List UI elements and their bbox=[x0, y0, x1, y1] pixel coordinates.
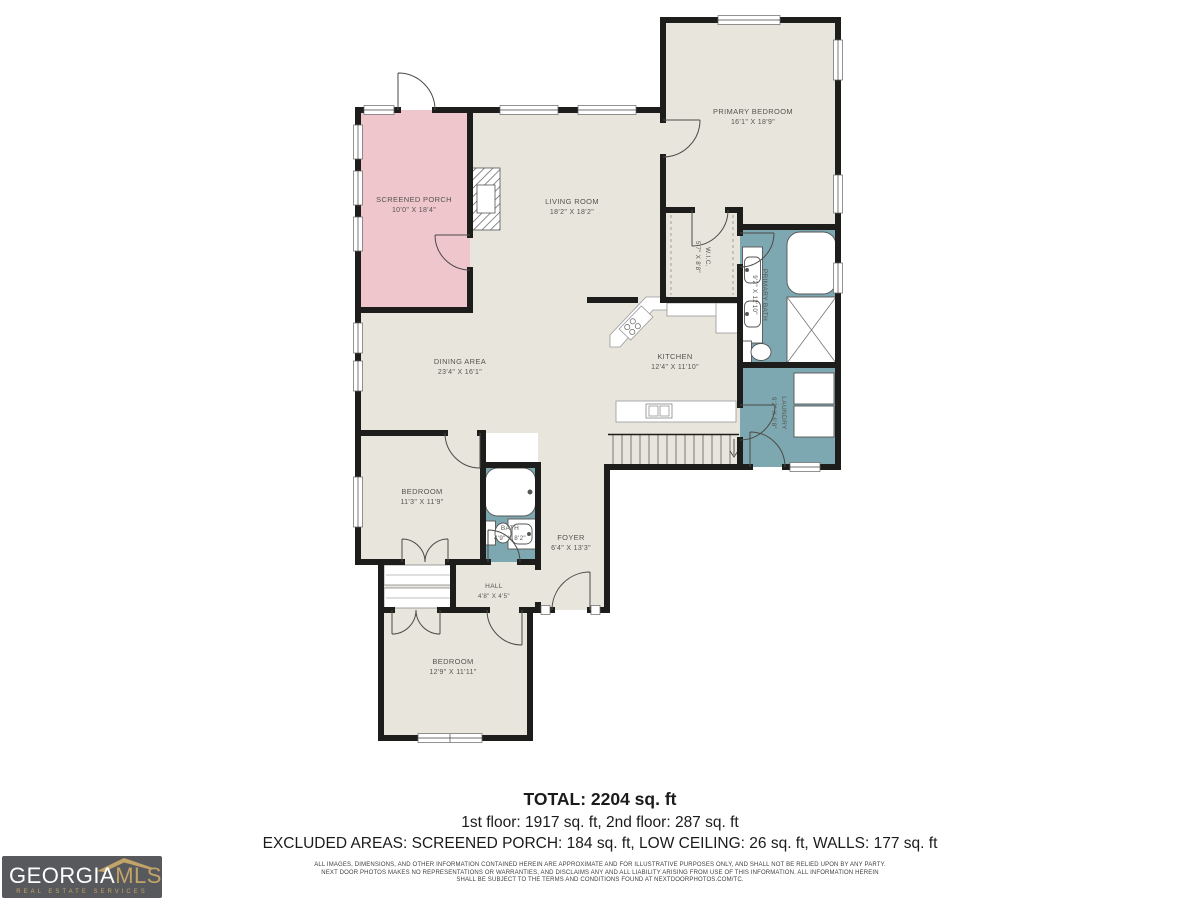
room-label-kitchen: KITCHEN12'4" X 11'10" bbox=[651, 351, 699, 373]
logo-wordmark: GEORGIAMLS bbox=[9, 865, 162, 887]
toilet-bowl bbox=[751, 344, 771, 361]
disclaimer-line-3: SHALL BE SUBJECT TO THE TERMS AND CONDIT… bbox=[0, 877, 1200, 885]
logo-text-mls: MLS bbox=[115, 863, 162, 888]
floor-plan: SCREENED PORCH10'0" X 18'4" LIVING ROOM1… bbox=[350, 5, 850, 750]
room-label-primary-bedroom: PRIMARY BEDROOM16'1" X 18'9" bbox=[713, 106, 793, 128]
room-label-living-room: LIVING ROOM18'2" X 18'2" bbox=[545, 196, 599, 218]
fridge bbox=[716, 303, 738, 333]
kitchen-island bbox=[616, 401, 736, 422]
disclaimer-line-2: NEXT DOOR PHOTOS MAKES NO REPRESENTATION… bbox=[0, 870, 1200, 878]
floor-areas-text: 1st floor: 1917 sq. ft, 2nd floor: 287 s… bbox=[0, 812, 1200, 834]
room-label-primary-bath: PRIMARY BATH9'2" X 12'10" bbox=[749, 269, 769, 321]
excluded-areas-text: EXCLUDED AREAS: SCREENED PORCH: 184 sq. … bbox=[0, 833, 1200, 855]
fireplace bbox=[472, 168, 500, 230]
dryer bbox=[794, 406, 834, 437]
room-label-dining-area: DINING AREA23'4" X 16'1" bbox=[434, 356, 486, 378]
room-label-screened-porch: SCREENED PORCH10'0" X 18'4" bbox=[376, 194, 452, 216]
room-label-bath: BATH4'9" X 8'2" bbox=[494, 524, 526, 544]
room-label-wic: W.I.C.5'7" X 8'8" bbox=[692, 241, 712, 273]
area-summary: TOTAL: 2204 sq. ft 1st floor: 1917 sq. f… bbox=[0, 788, 1200, 855]
room-label-hall: HALL4'8" X 4'5" bbox=[478, 582, 510, 602]
toilet-tank bbox=[743, 341, 752, 363]
bathtub bbox=[787, 232, 836, 294]
georgia-mls-logo: GEORGIAMLS REAL ESTATE SERVICES bbox=[2, 856, 162, 898]
total-area-text: TOTAL: 2204 sq. ft bbox=[0, 788, 1200, 812]
logo-tagline: REAL ESTATE SERVICES bbox=[2, 889, 162, 895]
room-label-bedroom-3: BEDROOM12'9" X 11'11" bbox=[429, 656, 476, 678]
disclaimer-line-1: ALL IMAGES, DIMENSIONS, AND OTHER INFORM… bbox=[0, 862, 1200, 870]
room-label-bedroom-2: BEDROOM11'3" X 11'9" bbox=[400, 486, 443, 508]
logo-text-georgia: GEORGIA bbox=[9, 863, 115, 888]
disclaimer: ALL IMAGES, DIMENSIONS, AND OTHER INFORM… bbox=[0, 862, 1200, 885]
room-label-laundry: LAUNDRY9'2" X 6'8" bbox=[768, 396, 788, 429]
porch-exterior-door bbox=[398, 73, 435, 110]
room-label-foyer: FOYER6'4" X 13'3" bbox=[551, 532, 591, 554]
washer bbox=[794, 373, 834, 404]
